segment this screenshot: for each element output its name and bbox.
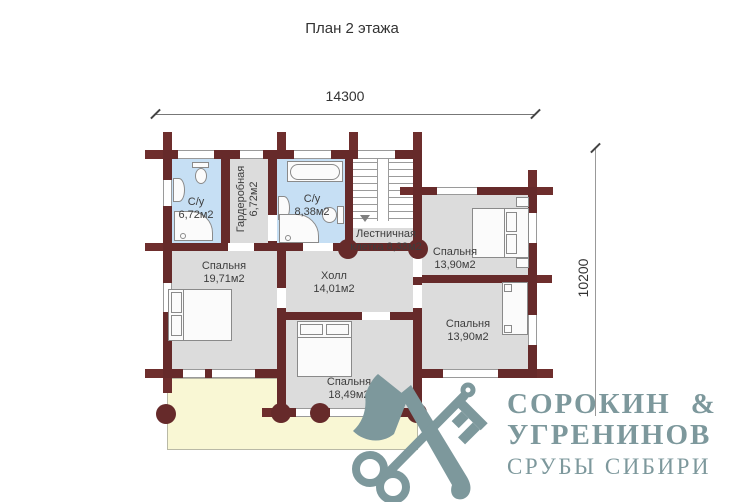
log-end	[145, 243, 163, 251]
room-label-bedroom-left: Спальня 19,71м2	[189, 260, 259, 286]
room-name: Лестничная	[346, 228, 426, 241]
nightstand-symbol	[516, 258, 529, 268]
room-area: клетка 8,38м2	[346, 241, 426, 254]
room-label-hall: Холл 14,01м2	[299, 270, 369, 296]
room-name: С/у	[166, 196, 226, 209]
log-end	[349, 132, 358, 150]
shower-drain	[180, 233, 186, 239]
window-opening	[183, 369, 205, 378]
log-end	[537, 275, 552, 283]
pillow-symbol	[171, 292, 182, 313]
log-end	[413, 132, 422, 150]
bed-headboard	[504, 208, 505, 258]
room-name: Спальня	[420, 246, 490, 259]
column	[271, 403, 291, 423]
bathtub-inner	[290, 164, 340, 180]
room-area: 19,71м2	[189, 273, 259, 286]
log-end	[528, 170, 537, 187]
room-name: Спальня	[433, 318, 503, 331]
log-end	[163, 132, 172, 150]
column	[156, 404, 176, 424]
page-title: План 2 этажа	[277, 20, 427, 37]
closet-detail	[504, 325, 512, 333]
door-opening	[362, 312, 390, 320]
room-area: 6,72м2	[248, 159, 261, 239]
room-name: Спальня	[189, 260, 259, 273]
column	[310, 403, 330, 423]
room-name: Холл	[299, 270, 369, 283]
floor-plan-page: План 2 этажа 14300 10200	[0, 0, 753, 502]
door-opening	[303, 243, 333, 251]
stair-flight	[353, 162, 377, 220]
room-label-bathroom-2: С/у 8,38м2	[282, 193, 342, 219]
window-opening	[178, 150, 214, 159]
dimension-right-value: 10200	[575, 243, 591, 313]
window-opening	[358, 150, 395, 159]
logo-line-3: СРУБЫ СИБИРИ	[507, 453, 743, 481]
door-opening	[413, 285, 422, 308]
dimension-right-line	[595, 148, 596, 416]
door-opening	[277, 288, 286, 308]
room-area: 13,90м2	[433, 331, 503, 344]
window-opening	[212, 369, 255, 378]
pillow-symbol	[506, 234, 517, 254]
log-end	[400, 187, 413, 195]
room-name: С/у	[282, 193, 342, 206]
log-end	[145, 369, 163, 378]
log-end	[145, 150, 163, 159]
door-opening	[228, 243, 254, 251]
logo-line-2: УГРЕНИНОВ	[507, 420, 743, 451]
logo-ampersand: &	[691, 388, 717, 420]
window-opening	[437, 187, 477, 195]
stair-direction-arrow	[360, 215, 370, 222]
room-area: 14,01м2	[299, 283, 369, 296]
nightstand-symbol	[516, 197, 529, 207]
room-name: Гардеробная	[235, 159, 248, 239]
room-label-bathroom-1: С/у 6,72м2	[166, 196, 226, 222]
wall-segment	[277, 251, 286, 408]
wall-segment	[277, 312, 422, 320]
dimension-top-line	[155, 114, 536, 115]
log-end	[537, 369, 553, 378]
logo-text: СОРОКИН& УГРЕНИНОВ СРУБЫ СИБИРИ	[507, 389, 743, 481]
closet-detail	[504, 284, 512, 292]
logo-line-1: СОРОКИН&	[507, 389, 743, 420]
pillow-symbol	[300, 324, 323, 335]
window-opening	[240, 150, 263, 159]
room-label-wardrobe: Гардеробная 6,72м2	[235, 159, 261, 239]
dimension-top-value: 14300	[295, 88, 395, 104]
room-label-staircase: Лестничная клетка 8,38м2	[346, 228, 426, 254]
log-end	[163, 378, 172, 393]
log-end	[277, 132, 286, 150]
pillow-symbol	[171, 315, 182, 336]
window-opening	[528, 213, 537, 243]
window-opening	[528, 315, 537, 345]
room-label-bedroom-bottom-right: Спальня 13,90м2	[433, 318, 503, 344]
log-end	[537, 187, 553, 195]
room-area: 6,72м2	[166, 209, 226, 222]
door-opening	[268, 215, 277, 241]
toilet-symbol	[195, 168, 207, 184]
room-area: 13,90м2	[420, 259, 490, 272]
pillow-symbol	[506, 212, 517, 232]
bed-headboard	[183, 289, 184, 341]
room-area: 8,38м2	[282, 206, 342, 219]
room-label-bedroom-top-right: Спальня 13,90м2	[420, 246, 490, 272]
pillow-symbol	[326, 324, 349, 335]
wall-segment	[413, 277, 422, 285]
stair-divider	[377, 159, 389, 221]
logo-name-1: СОРОКИН	[507, 388, 671, 420]
axe-key-logo-icon	[340, 356, 510, 502]
window-opening	[294, 150, 331, 159]
shower-drain	[285, 235, 291, 241]
bed-headboard	[297, 337, 352, 338]
